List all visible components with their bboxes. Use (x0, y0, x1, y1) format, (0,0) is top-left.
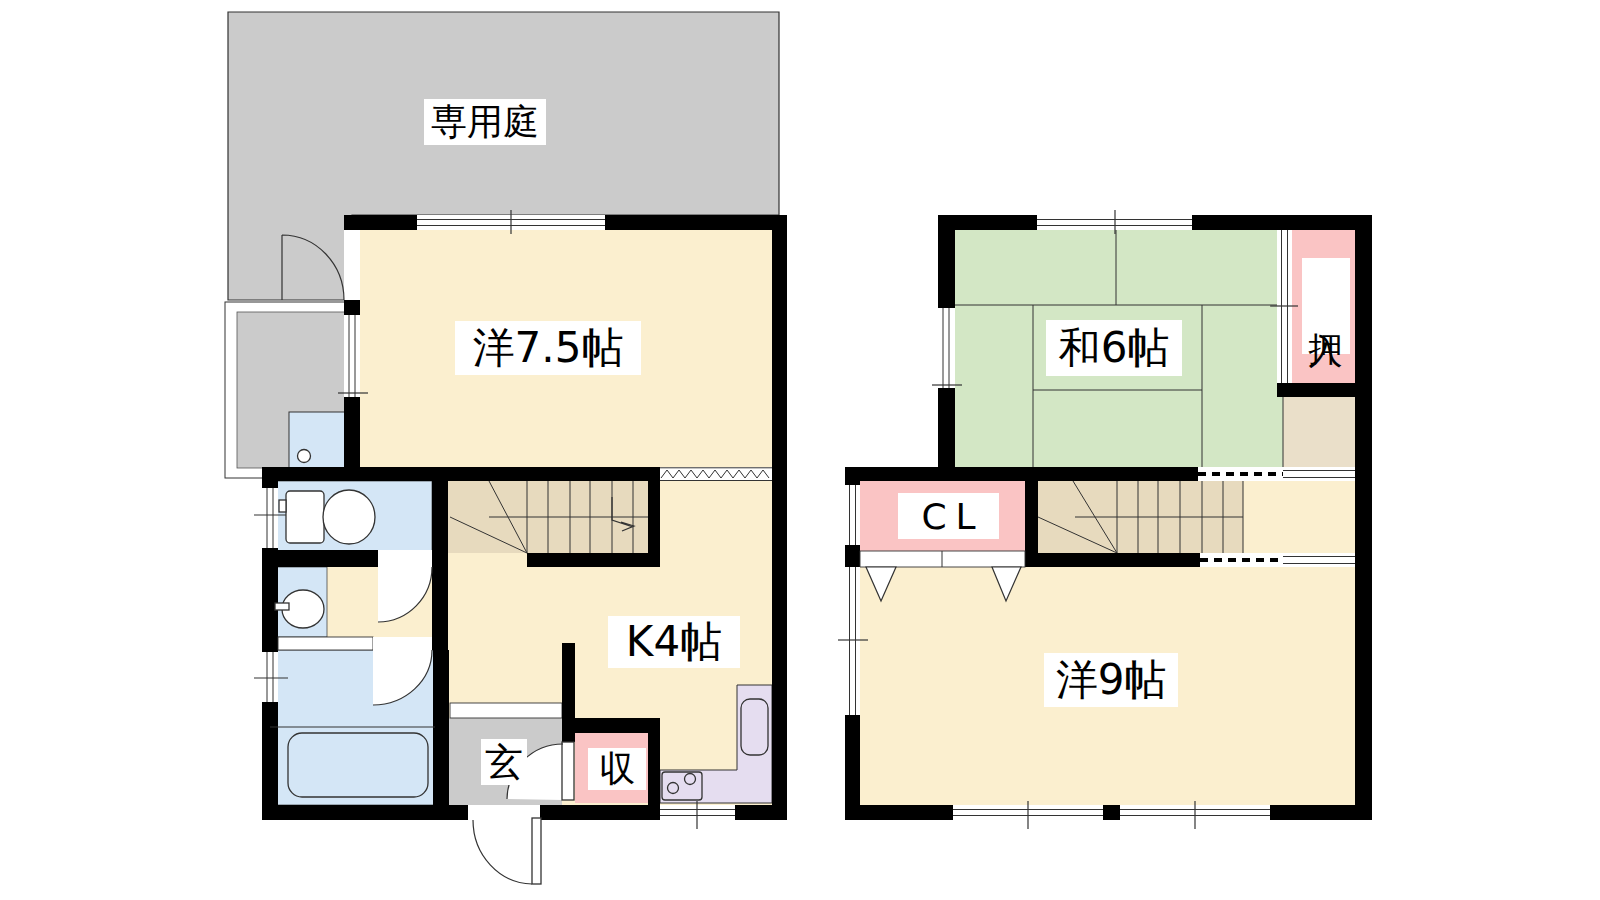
bathtub-icon (270, 727, 435, 797)
entrance-step (450, 703, 562, 718)
entrance-label: 玄 (481, 739, 527, 785)
floorplan-drawing (0, 0, 1600, 900)
porch-area (225, 302, 352, 478)
accordion-partition (660, 467, 772, 481)
drain-icon (298, 450, 311, 463)
floorplan-canvas: 専用庭 洋7.5帖 K4帖 玄 収 和6帖 押入 CL 洋9帖 (0, 0, 1600, 900)
western-room-9-label: 洋9帖 (1044, 653, 1178, 707)
washing-machine-pan (289, 412, 346, 468)
storage-label: 収 (588, 748, 646, 790)
western-room-7-5-label: 洋7.5帖 (455, 321, 641, 375)
oshiire-label: 押入 (1302, 258, 1350, 354)
staircase-2f (1038, 481, 1243, 553)
stair-landing (1283, 397, 1355, 467)
bath-partition (278, 637, 373, 650)
staircase-1f (448, 481, 648, 553)
closet-label: CL (898, 493, 999, 539)
garden-label: 専用庭 (424, 99, 546, 145)
kitchen-label: K4帖 (608, 616, 740, 668)
japanese-room-6-label: 和6帖 (1046, 320, 1182, 376)
